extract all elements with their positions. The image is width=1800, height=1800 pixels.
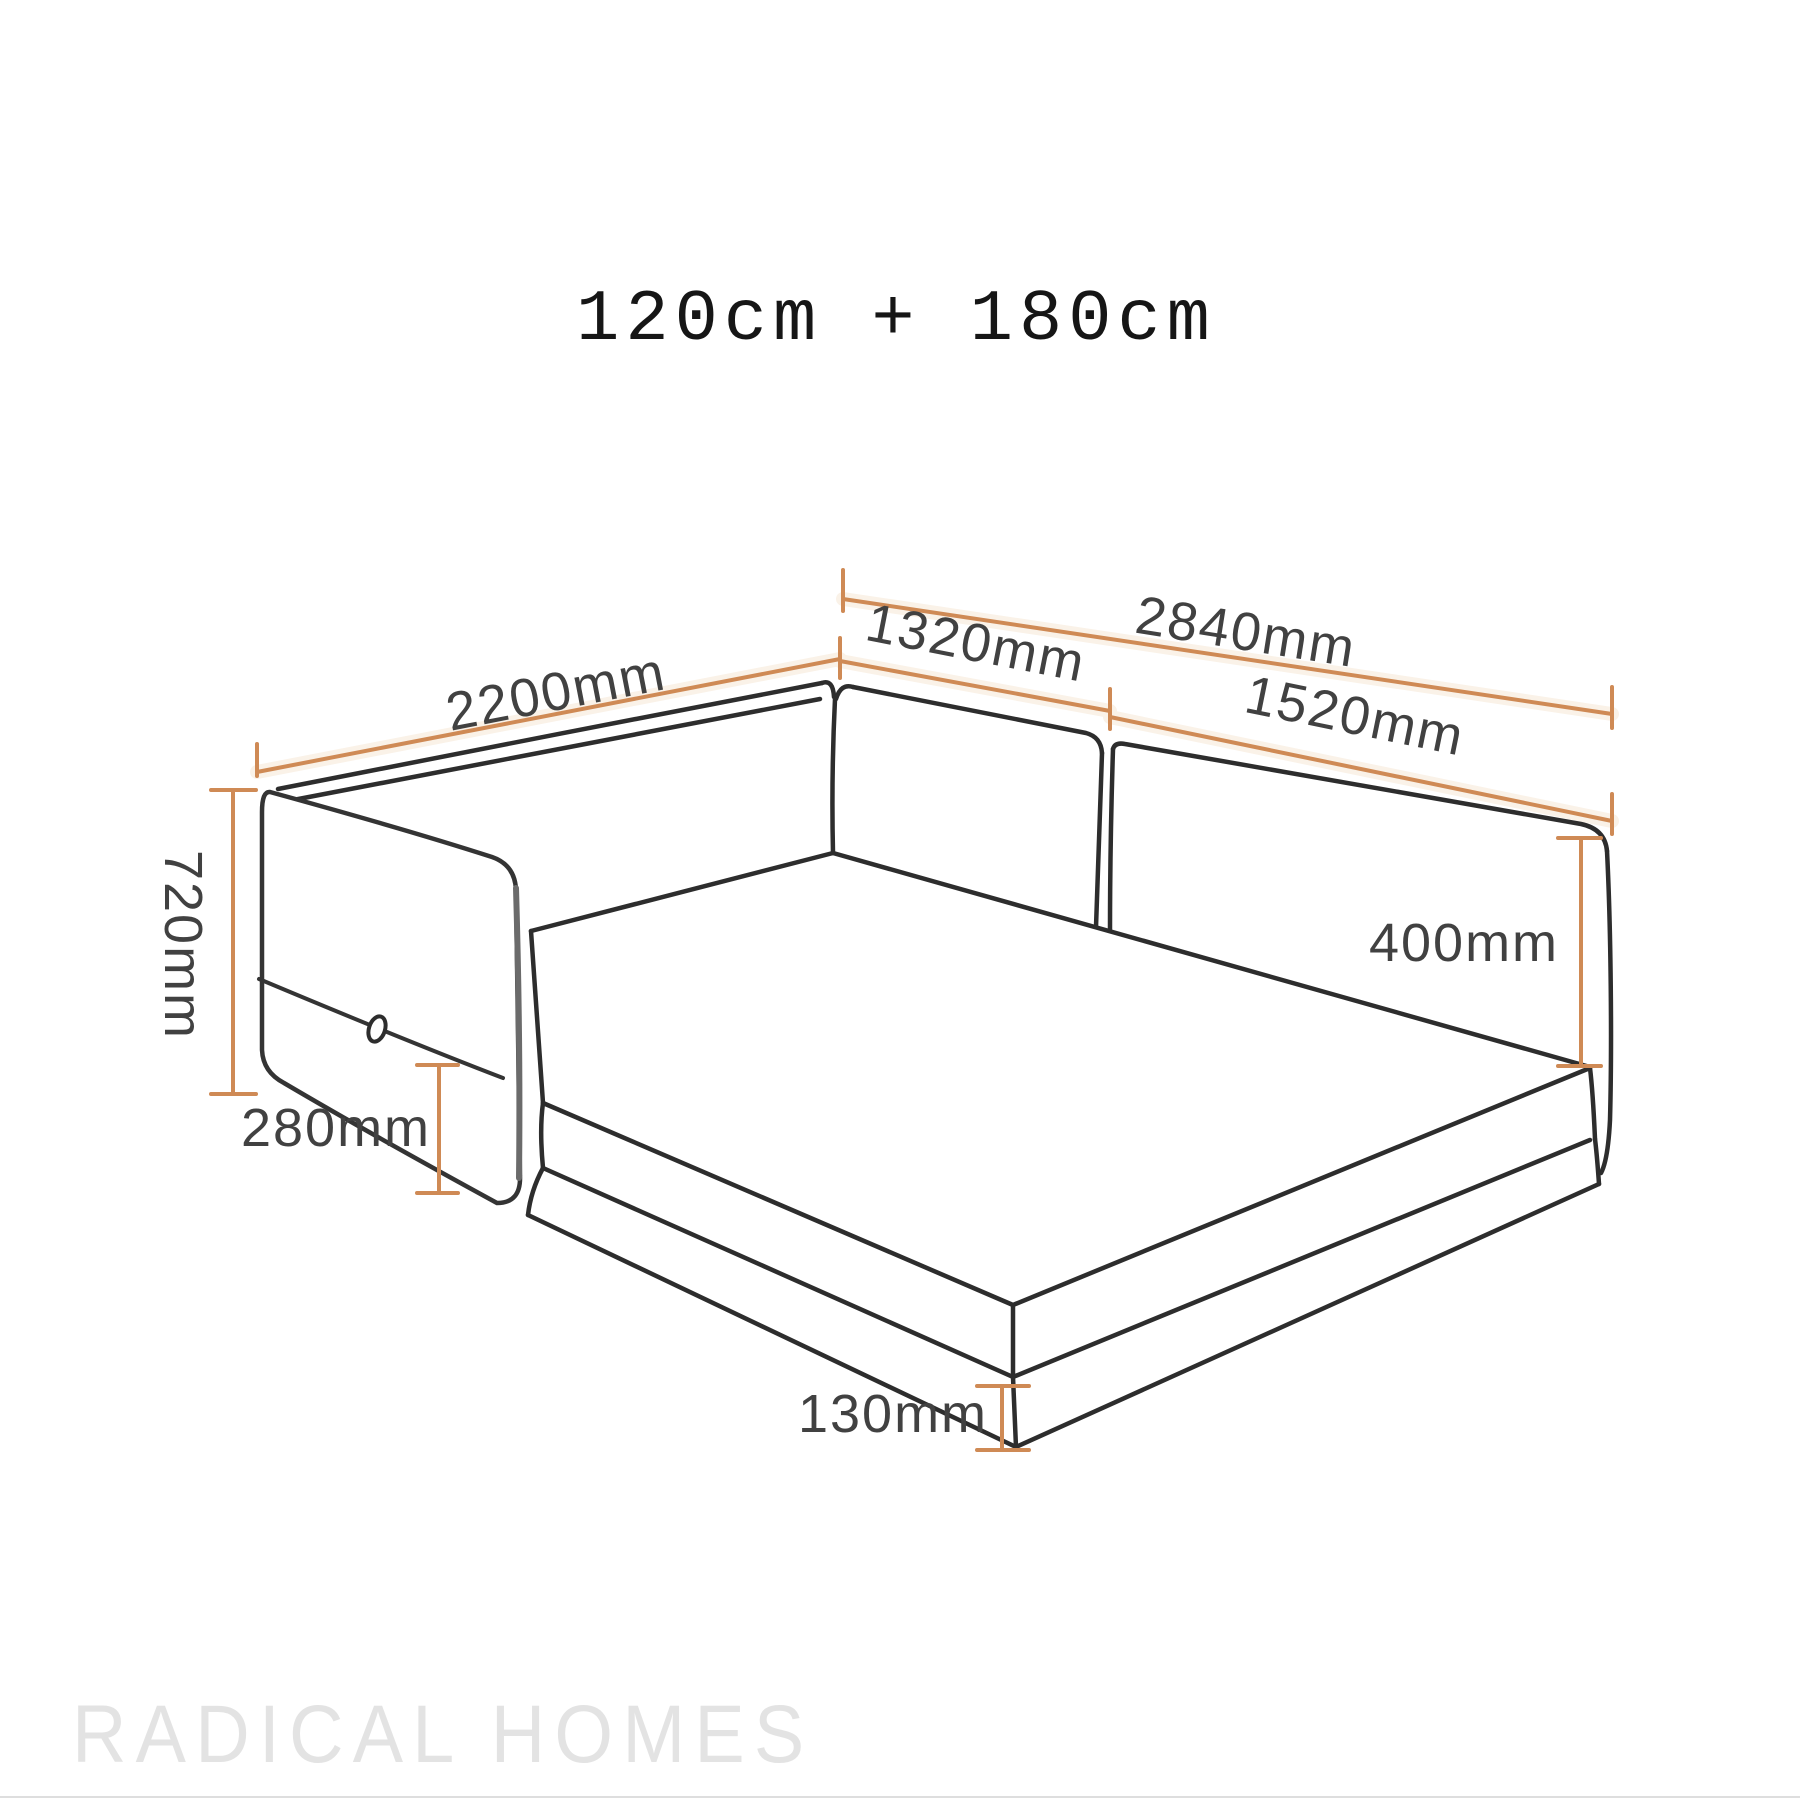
mattress-bottom-right-edge xyxy=(1013,1140,1590,1377)
mattress-right-corner xyxy=(1590,1068,1595,1139)
dim-label-400mm: 400mm xyxy=(1369,916,1559,970)
brand-watermark: RADICAL HOMES xyxy=(72,1694,813,1776)
arm-panel-right-edge xyxy=(516,888,519,1178)
mattress-left-edge xyxy=(531,931,543,1103)
mattress-front-right-edge xyxy=(1013,1068,1590,1305)
right-cushion-right-edge xyxy=(1601,851,1611,1173)
corner-seam xyxy=(832,699,835,853)
dim-label-280mm: 280mm xyxy=(241,1101,431,1155)
seat-fold-seam xyxy=(531,853,833,931)
diagram-canvas: 120cm + 180cm 2200mm 2840mm 1320mm 1520m… xyxy=(0,0,1800,1800)
dimension-400 xyxy=(1558,838,1601,1066)
layer-left-connector-2 xyxy=(528,1168,543,1215)
corner-notch-right xyxy=(836,686,853,699)
sofa-line-drawing xyxy=(0,0,1800,1800)
right-cushion-left-edge xyxy=(1110,749,1113,930)
dim-label-130mm: 130mm xyxy=(798,1387,988,1441)
right-cushion-top-edge xyxy=(1113,744,1607,851)
middle-cushion-right-edge xyxy=(1096,753,1102,927)
dim-label-720mm: 720mm xyxy=(156,850,210,1040)
dimension-720 xyxy=(211,790,256,1094)
base-right-corner xyxy=(1595,1139,1599,1184)
corner-notch-left xyxy=(822,682,834,697)
bottom-divider xyxy=(0,1796,1800,1798)
page-title: 120cm + 180cm xyxy=(576,284,1216,356)
base-bottom-right-edge xyxy=(1016,1184,1599,1447)
layer-left-connector-1 xyxy=(541,1103,543,1168)
